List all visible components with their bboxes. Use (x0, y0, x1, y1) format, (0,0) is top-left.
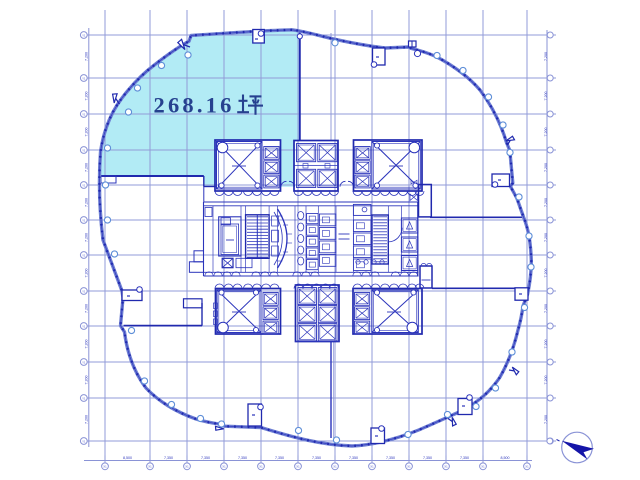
svg-text:X1: X1 (444, 465, 448, 469)
svg-text:X1: X1 (481, 465, 485, 469)
svg-text:X1: X1 (296, 465, 300, 469)
svg-text:8,500: 8,500 (501, 456, 510, 460)
svg-text:Y1: Y1 (82, 360, 86, 364)
svg-text:X1: X1 (259, 465, 263, 469)
svg-text:268.16: 268.16 (154, 93, 235, 118)
svg-text:X1: X1 (148, 465, 152, 469)
svg-text:7,200: 7,200 (544, 415, 548, 424)
svg-text:7,200: 7,200 (85, 92, 89, 101)
svg-text:X1: X1 (103, 465, 107, 469)
svg-text:7,200: 7,200 (544, 304, 548, 313)
svg-text:Y1: Y1 (82, 76, 86, 80)
svg-text:7,350: 7,350 (312, 456, 321, 460)
svg-text:7,200: 7,200 (85, 163, 89, 172)
svg-text:Y1: Y1 (82, 253, 86, 257)
svg-text:7,200: 7,200 (544, 269, 548, 278)
svg-text:Y1: Y1 (82, 439, 86, 443)
svg-text:Y1: Y1 (82, 289, 86, 293)
svg-text:7,350: 7,350 (201, 456, 210, 460)
svg-text:7,200: 7,200 (544, 340, 548, 349)
svg-text:7,200: 7,200 (85, 269, 89, 278)
svg-text:Y1: Y1 (82, 183, 86, 187)
svg-text:X1: X1 (525, 465, 529, 469)
svg-text:Y1: Y1 (82, 396, 86, 400)
svg-text:7,200: 7,200 (544, 92, 548, 101)
svg-text:7,200: 7,200 (85, 415, 89, 424)
svg-text:X1: X1 (222, 465, 226, 469)
svg-text:7,200: 7,200 (85, 198, 89, 207)
svg-text:7,350: 7,350 (275, 456, 284, 460)
svg-text:Y1: Y1 (82, 218, 86, 222)
svg-text:7,350: 7,350 (423, 456, 432, 460)
svg-text:7,350: 7,350 (349, 456, 358, 460)
svg-text:Y1: Y1 (82, 148, 86, 152)
svg-text:7,200: 7,200 (544, 376, 548, 385)
svg-text:7,350: 7,350 (238, 456, 247, 460)
svg-text:X1: X1 (407, 465, 411, 469)
svg-text:X1: X1 (185, 465, 189, 469)
svg-text:7,200: 7,200 (544, 198, 548, 207)
svg-text:Y1: Y1 (82, 324, 86, 328)
svg-text:7,200: 7,200 (544, 128, 548, 137)
svg-text:7,350: 7,350 (386, 456, 395, 460)
svg-text:7,200: 7,200 (85, 340, 89, 349)
svg-text:7,350: 7,350 (460, 456, 469, 460)
svg-text:X1: X1 (333, 465, 337, 469)
svg-text:7,200: 7,200 (85, 376, 89, 385)
svg-text:7,200: 7,200 (544, 52, 548, 61)
svg-text:7,200: 7,200 (85, 52, 89, 61)
svg-text:Y1: Y1 (82, 33, 86, 37)
svg-text:7,200: 7,200 (544, 233, 548, 242)
svg-text:Y1: Y1 (82, 112, 86, 116)
svg-text:X1: X1 (370, 465, 374, 469)
svg-text:7,350: 7,350 (164, 456, 173, 460)
svg-text:8,500: 8,500 (123, 456, 132, 460)
svg-text:7,200: 7,200 (85, 128, 89, 137)
svg-text:7,200: 7,200 (544, 163, 548, 172)
svg-text:7,200: 7,200 (85, 304, 89, 313)
svg-text:7,200: 7,200 (85, 233, 89, 242)
